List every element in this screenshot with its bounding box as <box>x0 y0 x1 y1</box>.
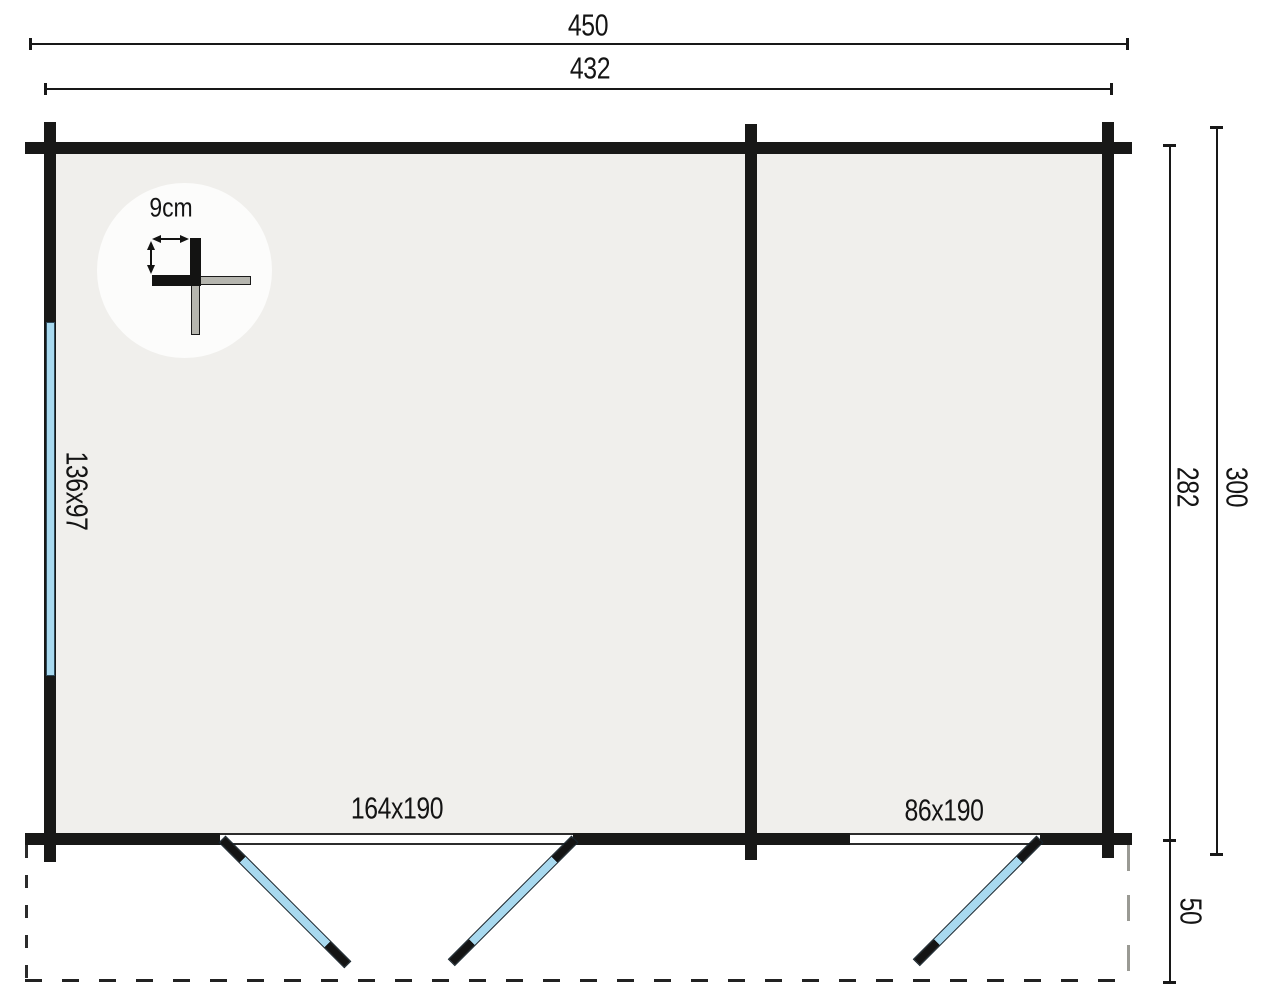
dim-50-tick-bottom <box>1163 981 1176 984</box>
wall-partition <box>745 124 757 860</box>
single-door-opening <box>850 833 1040 845</box>
double-door-size-label: 164x190 <box>351 793 443 824</box>
wall-bottom-segment-3 <box>757 833 850 845</box>
dim-432-tick-left <box>44 83 47 95</box>
dim-432-label: 432 <box>570 53 610 84</box>
wall-top <box>25 142 1132 154</box>
terrace-outline-left <box>25 845 28 983</box>
floor-plan-canvas: 450 432 282 300 50 136x97 164x190 86x190… <box>0 0 1280 994</box>
dim-300-tick-bottom <box>1210 853 1223 856</box>
thickness-arrow-horizontal-line <box>160 238 182 240</box>
double-door-leaf-left <box>218 835 351 968</box>
dim-282-tick-top <box>1163 144 1176 147</box>
log-gray-horizontal <box>200 276 251 285</box>
dim-450-line <box>30 43 1128 45</box>
terrace-outline-bottom <box>25 979 1129 982</box>
dim-50-label: 50 <box>1176 898 1207 925</box>
dim-450-tick-left <box>29 38 32 50</box>
left-window-glass <box>46 322 55 676</box>
thickness-arrow-right-head-icon <box>180 235 189 243</box>
thickness-arrow-up-head-icon <box>147 241 155 250</box>
thickness-arrow-down-head-icon <box>147 265 155 274</box>
dim-300-line <box>1216 127 1218 854</box>
dim-432-tick-right <box>1110 83 1113 95</box>
wall-bottom-segment-1 <box>25 833 220 845</box>
dim-300-tick-top <box>1210 126 1223 129</box>
double-door-leaf-right <box>448 835 579 966</box>
wall-thickness-label: 9cm <box>149 195 192 222</box>
wall-bottom-segment-4 <box>1040 833 1132 845</box>
single-door-size-label: 86x190 <box>905 795 984 826</box>
wall-right <box>1102 122 1114 858</box>
dim-450-tick-right <box>1126 38 1129 50</box>
dim-432-line <box>45 88 1112 90</box>
window-size-label: 136x97 <box>62 452 93 531</box>
wall-bottom-segment-2 <box>573 833 745 845</box>
log-black-horizontal <box>152 275 201 286</box>
log-gray-vertical <box>191 284 200 335</box>
terrace-outline-right <box>1127 845 1130 979</box>
dim-300-label: 300 <box>1222 467 1253 507</box>
dim-282-label: 282 <box>1173 467 1204 507</box>
dim-450-label: 450 <box>568 10 608 41</box>
single-door-leaf <box>913 835 1044 966</box>
dim-50-line <box>1169 842 1171 983</box>
double-door-opening <box>220 833 573 845</box>
